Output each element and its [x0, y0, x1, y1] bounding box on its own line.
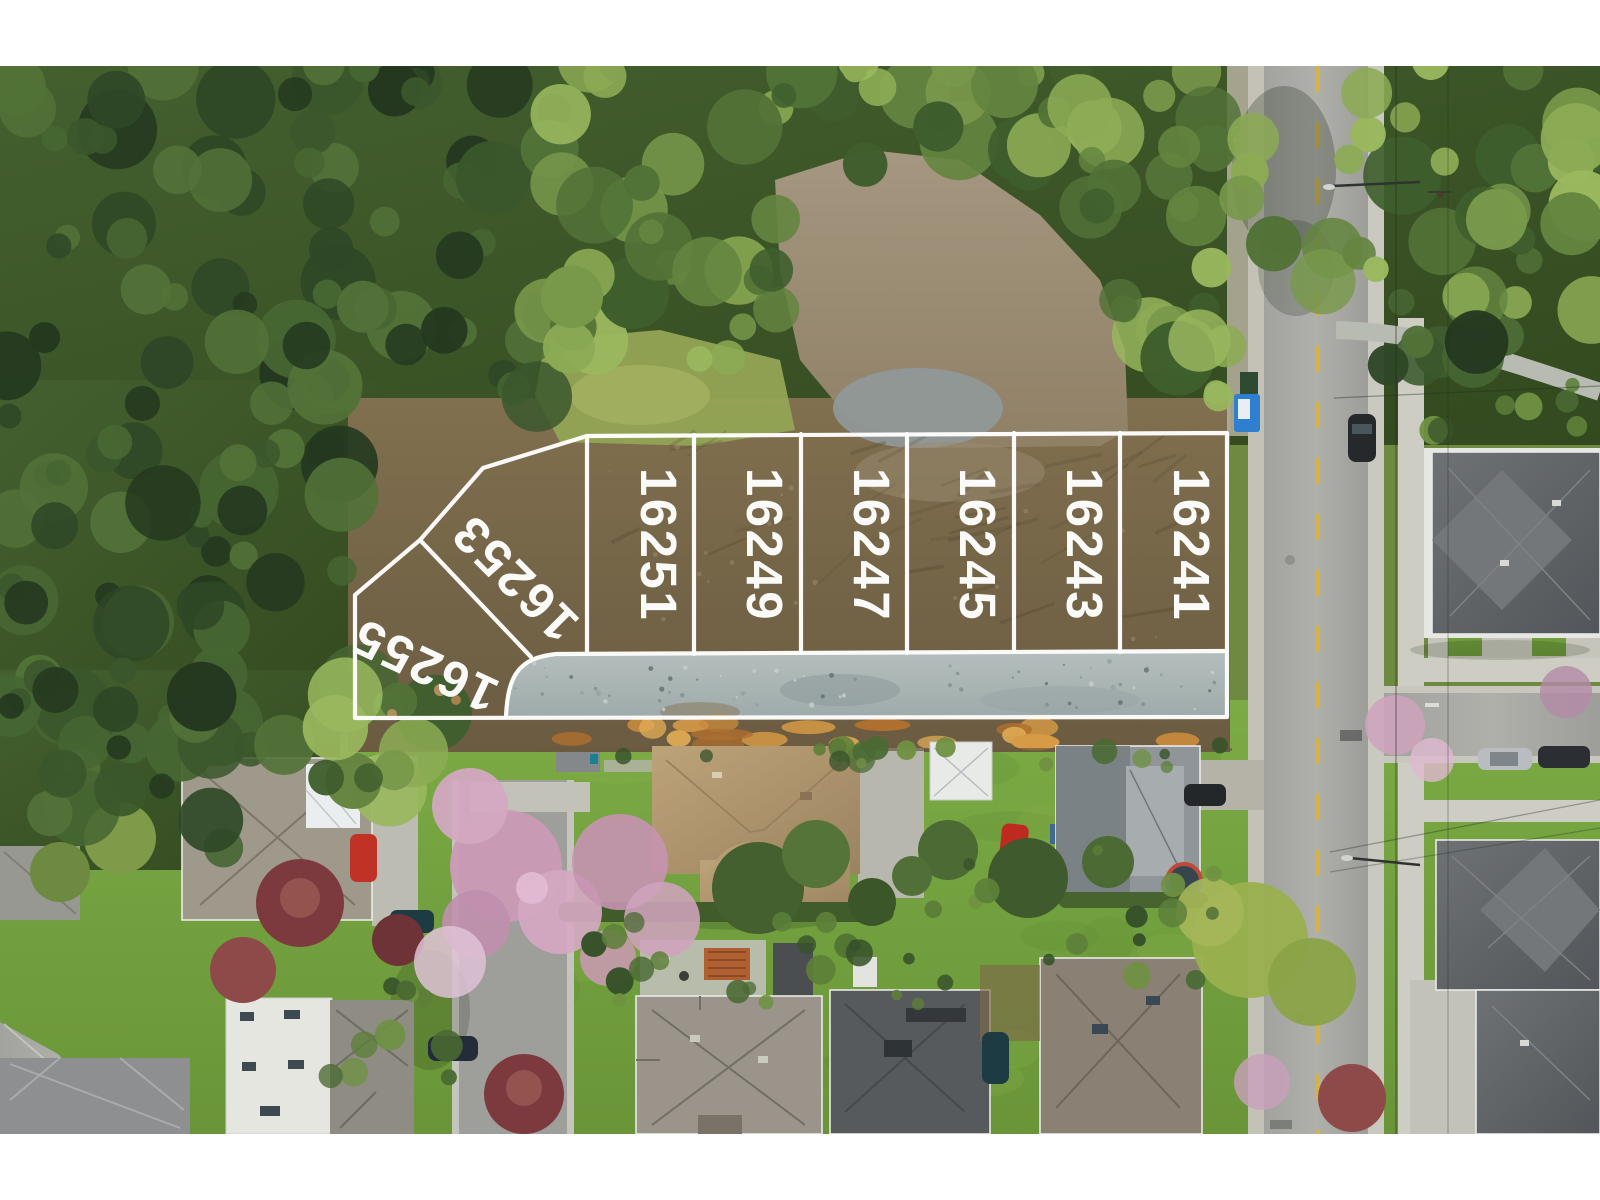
- tree-blob: [1466, 189, 1527, 250]
- shrub: [1206, 866, 1222, 882]
- gravel-speck: [569, 675, 573, 679]
- shrub: [1206, 907, 1219, 920]
- orange-brush: [667, 730, 691, 747]
- shrub: [441, 1069, 457, 1085]
- ground-speck: [704, 551, 708, 555]
- tree-blob: [294, 148, 324, 178]
- gravel-speck: [594, 687, 598, 691]
- gravel-speck: [741, 691, 746, 696]
- tree-blob: [93, 687, 138, 732]
- shrub: [816, 912, 837, 933]
- tree-blob: [188, 148, 252, 212]
- tree-blob: [303, 178, 354, 229]
- gravel-speck: [668, 676, 673, 681]
- gravel-speck: [854, 678, 857, 681]
- shrub: [1428, 417, 1454, 443]
- ground-speck: [901, 493, 906, 498]
- shrub: [1186, 970, 1206, 990]
- tree-blob: [94, 763, 147, 816]
- ground-speck: [675, 444, 680, 449]
- porta-potty: [1234, 394, 1260, 432]
- tree-blob: [1219, 176, 1264, 221]
- lot-number-16243: 16243: [1056, 468, 1113, 622]
- tree-blob: [283, 322, 330, 369]
- shrub: [1161, 761, 1173, 773]
- tree-blob: [4, 581, 48, 625]
- orange-brush: [1011, 734, 1059, 750]
- gravel-speck: [696, 679, 698, 681]
- shrub: [856, 758, 866, 768]
- orange-brush: [552, 732, 592, 746]
- ground-speck: [730, 560, 735, 565]
- black-car: [1184, 784, 1226, 806]
- gravel-speck: [1211, 671, 1215, 675]
- tree-blob: [639, 219, 664, 244]
- ground-speck: [813, 580, 818, 585]
- gravel-speck: [839, 695, 842, 698]
- tree-blob: [711, 340, 746, 375]
- tree-blob: [178, 788, 243, 853]
- shrub: [1126, 906, 1148, 928]
- tree-blob: [751, 195, 800, 244]
- tree-blob: [543, 321, 595, 373]
- tree-blob: [1192, 248, 1232, 288]
- tree-blob: [303, 695, 368, 760]
- house-b3: [1040, 958, 1202, 1134]
- tree-blob: [385, 324, 427, 366]
- tree-blob: [46, 460, 72, 486]
- tree-blob: [220, 444, 257, 481]
- shrub: [912, 998, 924, 1010]
- tree-blob: [1363, 256, 1389, 282]
- gravel-speck: [1089, 681, 1094, 686]
- shrub: [1093, 845, 1103, 855]
- orange-brush: [855, 719, 911, 731]
- letterbox-bottom: [0, 1134, 1600, 1200]
- tree-blob: [624, 165, 660, 201]
- gravel-speck: [733, 699, 735, 701]
- gravel-speck: [1045, 703, 1049, 707]
- aerial-lot-listing-photo: 16255 16253 16251 16249 16247 16245 1624…: [0, 0, 1600, 1200]
- tree-blob: [42, 126, 68, 152]
- tree-blob: [27, 791, 73, 837]
- tree-blob: [556, 167, 633, 244]
- manhole-cover: [1285, 555, 1295, 565]
- tree-blob: [1431, 148, 1459, 176]
- tree-blob: [1203, 381, 1233, 411]
- tree-blob: [456, 141, 530, 215]
- shrub: [1567, 416, 1588, 437]
- shrub: [772, 912, 792, 932]
- gravel-speck: [532, 661, 536, 665]
- gravel-speck: [736, 696, 738, 698]
- tree-blob: [707, 89, 782, 164]
- tree-blob: [337, 281, 389, 333]
- gravel-speck: [1132, 686, 1135, 689]
- gravel-speck: [545, 675, 548, 678]
- shrub: [1123, 962, 1151, 990]
- shrub: [937, 975, 953, 991]
- tree-blob: [1168, 309, 1230, 371]
- tree-blob: [110, 658, 136, 684]
- gravel-speck: [720, 675, 722, 677]
- chimney: [800, 792, 812, 800]
- tree-blob: [1334, 145, 1364, 175]
- ground-speck: [1023, 509, 1028, 514]
- tree-blob: [1166, 186, 1226, 246]
- gravel-speck: [659, 687, 664, 692]
- gravel-speck: [1194, 708, 1196, 710]
- gravel-speck: [835, 681, 837, 683]
- tree-blob: [246, 553, 304, 611]
- tree-blob: [1341, 68, 1392, 119]
- gravel-speck: [544, 667, 546, 669]
- white-house: [226, 998, 414, 1134]
- shrub: [629, 957, 654, 982]
- gravel-speck: [829, 673, 834, 678]
- shrub: [726, 980, 750, 1004]
- shrub: [1133, 933, 1146, 946]
- gravel-speck: [1141, 702, 1145, 706]
- shrub: [1159, 749, 1170, 760]
- shrub: [1066, 933, 1088, 955]
- tree-blob: [1158, 126, 1200, 168]
- gravel-speck: [515, 687, 517, 689]
- tree-blob: [1246, 216, 1301, 271]
- gravel-speck: [1111, 685, 1116, 690]
- garden-beds: [980, 965, 1040, 1041]
- shrub: [319, 1064, 343, 1088]
- tree-blob: [290, 110, 335, 155]
- shrub: [351, 1031, 378, 1058]
- lawn-mottle: [1020, 920, 1099, 951]
- gravel-speck: [956, 672, 960, 676]
- shrub: [396, 981, 416, 1001]
- gravel-speck: [1118, 700, 1123, 705]
- skylight: [884, 1040, 912, 1057]
- gravel-speck: [842, 694, 846, 698]
- east-gutter: [1368, 66, 1384, 1134]
- tree-blob: [305, 458, 379, 532]
- shrub: [1495, 395, 1515, 415]
- recycle-bin: [590, 754, 598, 764]
- shrub: [1212, 737, 1228, 753]
- letterbox-top: [0, 0, 1600, 66]
- tree-blob: [1368, 345, 1409, 386]
- shrub: [903, 953, 915, 965]
- gravel-speck: [1180, 685, 1182, 687]
- tree-blob: [125, 386, 160, 421]
- waste-bin: [1240, 372, 1258, 394]
- tree-blob: [250, 382, 293, 425]
- gravel-speck: [755, 703, 759, 707]
- shrub: [963, 858, 975, 870]
- shrub: [974, 878, 999, 903]
- shrub: [1565, 378, 1579, 392]
- orange-brush: [639, 717, 666, 739]
- gravel-speck: [809, 702, 814, 707]
- aerial-photo-scene: 16255 16253 16251 16249 16247 16245 1624…: [0, 0, 1600, 1200]
- gravel-speck: [1012, 677, 1014, 679]
- dark-suv: [1348, 414, 1376, 462]
- tree-blob: [32, 667, 78, 713]
- tree-blob: [141, 336, 194, 389]
- tree-blob: [1047, 74, 1112, 139]
- tree-blob: [729, 313, 756, 340]
- tree-blob: [750, 248, 794, 292]
- catch-basin: [1340, 730, 1362, 741]
- ground-speck: [707, 581, 709, 583]
- gravel-speck: [1160, 673, 1163, 676]
- shrub: [624, 912, 645, 933]
- gravel-speck: [1045, 682, 1048, 685]
- shrub: [891, 990, 902, 1001]
- gravel-speck: [1017, 670, 1020, 673]
- shrub: [375, 1020, 406, 1051]
- gravel-speck: [580, 691, 584, 695]
- gravel-speck: [658, 699, 662, 703]
- gravel-speck: [680, 693, 684, 697]
- black-car: [1538, 746, 1590, 768]
- utility-pole: [1437, 192, 1443, 198]
- tree-blob: [97, 425, 132, 460]
- lot-number-16241: 16241: [1163, 468, 1220, 622]
- tree-blob: [1390, 102, 1420, 132]
- gravel-speck: [608, 694, 611, 697]
- tree-blob: [541, 266, 603, 328]
- street-lamp-head: [1323, 184, 1335, 190]
- tree-blob: [107, 735, 131, 759]
- house-a: [1424, 448, 1600, 638]
- shrub: [936, 737, 956, 757]
- tree-blob: [121, 264, 171, 314]
- shrub: [813, 743, 825, 755]
- shrub: [602, 924, 627, 949]
- tree-blob: [1080, 188, 1115, 223]
- gravel-speck: [1208, 689, 1211, 692]
- gravel-speck: [948, 683, 952, 687]
- gravel-speck: [959, 687, 963, 691]
- tree-blob: [1445, 310, 1509, 374]
- tree-blob: [1401, 326, 1433, 358]
- shrub: [1133, 749, 1152, 768]
- tree-blob: [370, 207, 400, 237]
- gravel-speck: [1213, 681, 1217, 685]
- gravel-speck: [603, 699, 607, 703]
- shrub: [1039, 757, 1053, 771]
- tree-blob: [1388, 289, 1414, 315]
- gravel-speck: [1107, 659, 1112, 664]
- tree-blob: [205, 310, 269, 374]
- tree-blob: [354, 763, 383, 792]
- gravel-speck: [948, 664, 952, 668]
- gravel-speck: [662, 708, 665, 711]
- tree-blob: [928, 103, 956, 131]
- ground-speck: [697, 572, 702, 577]
- tree-blob: [218, 486, 268, 536]
- tree-blob: [46, 233, 71, 258]
- orange-brush: [782, 720, 836, 734]
- tree-blob: [149, 774, 174, 799]
- tree-blob: [672, 237, 742, 307]
- gravel-speck: [1068, 702, 1072, 706]
- shrub: [759, 995, 774, 1010]
- gravel-speck: [1080, 676, 1082, 678]
- lot-number-16245: 16245: [949, 468, 1006, 622]
- tree-blob: [39, 750, 87, 798]
- shrub: [897, 740, 917, 760]
- shrub: [613, 993, 626, 1006]
- lot-number-16249: 16249: [736, 468, 793, 622]
- tree-blob: [67, 118, 104, 155]
- sidewalk-south-of-side-street: [1424, 800, 1600, 822]
- gravel-speck: [774, 669, 778, 673]
- shrub: [700, 749, 713, 762]
- gravel-speck: [683, 666, 687, 670]
- shrub: [1043, 954, 1055, 966]
- tree-blob: [107, 218, 148, 259]
- shrub: [849, 940, 861, 952]
- gravel-speck: [1144, 668, 1149, 673]
- shrub: [829, 751, 850, 772]
- shrub: [925, 901, 942, 918]
- house-b1: [636, 996, 822, 1134]
- tree-blob: [436, 232, 483, 279]
- gravel-speck: [668, 691, 671, 694]
- tree-blob: [177, 582, 225, 630]
- tree-blob: [687, 346, 713, 372]
- ground-speck: [794, 601, 798, 605]
- tree-blob: [167, 662, 237, 732]
- gravel-speck: [596, 691, 601, 696]
- tree-blob: [308, 760, 344, 796]
- tree-blob: [93, 586, 169, 662]
- gravel-speck: [1119, 683, 1123, 687]
- gravel-speck: [753, 669, 757, 673]
- tree-blob: [125, 465, 200, 540]
- shrub: [797, 935, 816, 954]
- gravel-speck: [1063, 664, 1065, 666]
- gravel-speck: [821, 694, 825, 698]
- tree-blob: [278, 77, 312, 111]
- tree-blob: [1099, 279, 1142, 322]
- shrub: [1515, 393, 1543, 421]
- gravel-speck: [1075, 706, 1078, 709]
- gravel-access-road: [506, 652, 1226, 722]
- shrub: [1556, 390, 1579, 413]
- lot-number-16251: 16251: [630, 468, 687, 622]
- shrub: [431, 1030, 463, 1062]
- tree-blob: [31, 502, 78, 549]
- ground-speck: [609, 470, 611, 472]
- shrub: [1158, 898, 1187, 927]
- shrub: [340, 1058, 369, 1087]
- tree-blob: [421, 307, 468, 354]
- gravel-speck: [803, 675, 805, 677]
- gravel-speck: [541, 692, 545, 696]
- red-car: [350, 834, 377, 882]
- gravel-speck: [1090, 667, 1092, 669]
- shrub: [1161, 873, 1185, 897]
- ground-speck: [1131, 636, 1136, 641]
- tree-blob: [196, 59, 275, 138]
- shrub: [1092, 739, 1118, 765]
- tree-blob: [1227, 113, 1279, 165]
- tree-blob: [531, 84, 591, 144]
- lot-number-16247: 16247: [843, 468, 900, 622]
- ground-speck: [1155, 636, 1157, 638]
- tree-blob: [843, 142, 888, 187]
- gravel-speck: [794, 679, 797, 682]
- tree-blob: [327, 556, 357, 586]
- tree-blob: [401, 77, 430, 106]
- tree-blob: [1143, 80, 1175, 112]
- tree-blob: [771, 83, 796, 108]
- shrub: [806, 955, 836, 985]
- teal-suv: [982, 1032, 1009, 1084]
- shrub: [615, 748, 631, 764]
- gravel-speck: [648, 666, 653, 671]
- tree-blob: [87, 71, 145, 129]
